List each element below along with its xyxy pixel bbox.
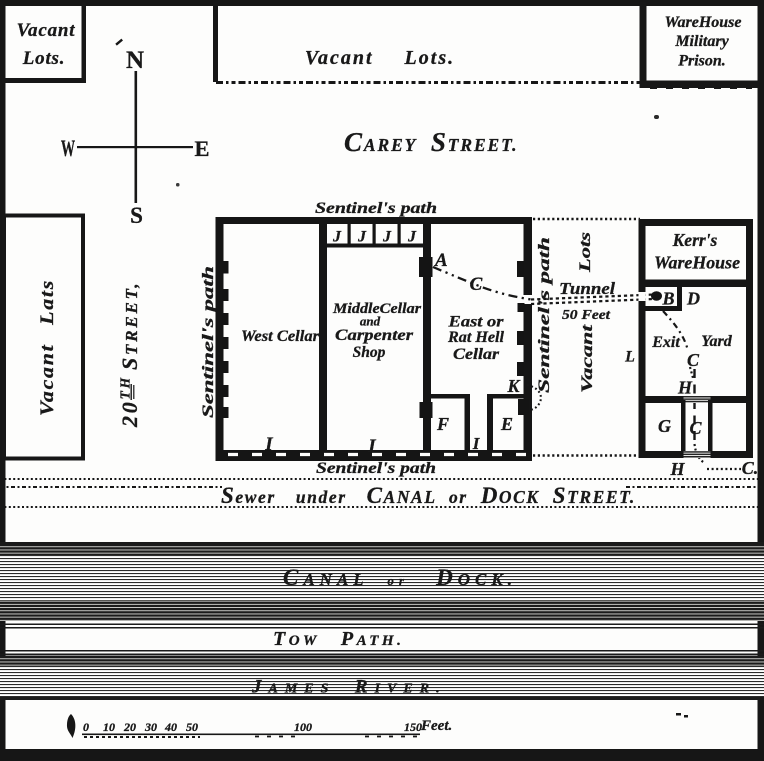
svg-text:Rat Hell: Rat Hell: [447, 329, 505, 346]
svg-text:C: C: [470, 274, 483, 295]
svg-text:20: 20: [123, 720, 136, 734]
svg-text:East or: East or: [447, 314, 504, 331]
svg-text:0: 0: [83, 720, 89, 734]
svg-text:Military: Military: [674, 33, 729, 50]
svg-text:E: E: [194, 136, 209, 161]
svg-text:B: B: [661, 289, 674, 309]
svg-text:50: 50: [186, 720, 198, 734]
svg-text:K: K: [506, 376, 521, 396]
svg-text:D: D: [686, 289, 700, 309]
svg-text:G: G: [658, 416, 671, 436]
svg-text:C: C: [687, 350, 700, 370]
svg-text:Tunnel: Tunnel: [559, 279, 615, 298]
svg-text:Vacant: Vacant: [579, 324, 596, 393]
svg-text:40: 40: [164, 720, 177, 734]
svg-text:F: F: [436, 414, 449, 434]
svg-text:J: J: [407, 229, 417, 246]
svg-text:H: H: [669, 459, 685, 479]
svg-text:I: I: [367, 436, 376, 457]
svg-text:Sentinel's path: Sentinel's path: [200, 266, 217, 418]
svg-text:C.: C.: [742, 458, 759, 478]
svg-text:I: I: [264, 434, 273, 455]
svg-text:J: J: [357, 229, 367, 246]
svg-text:Exit: Exit: [651, 334, 680, 351]
svg-text:W: W: [61, 137, 75, 162]
svg-text:50 Feet: 50 Feet: [562, 308, 611, 323]
svg-text:30: 30: [144, 720, 157, 734]
svg-text:Kerr's: Kerr's: [672, 230, 718, 250]
svg-text:J: J: [382, 229, 392, 246]
svg-text:C: C: [689, 418, 702, 438]
svg-text:150: 150: [404, 720, 422, 734]
svg-text:10: 10: [103, 720, 115, 734]
svg-text:Sentinel's path: Sentinel's path: [316, 460, 436, 477]
svg-text:Lots.: Lots.: [22, 48, 66, 69]
svg-text:H: H: [677, 378, 693, 398]
svg-text:Vacant Lats: Vacant Lats: [37, 279, 58, 416]
svg-text:J: J: [332, 229, 342, 246]
svg-text:L: L: [624, 349, 635, 366]
svg-text:E: E: [500, 414, 513, 434]
svg-text:Sentinel's path: Sentinel's path: [536, 237, 553, 393]
svg-text:Prison.: Prison.: [677, 53, 726, 70]
svg-text:Sewer under CANAL or DOCK STRE: Sewer under CANAL or DOCK STREET.: [221, 483, 636, 508]
svg-text:Vacant: Vacant: [17, 20, 76, 41]
svg-text:West Cellar: West Cellar: [241, 328, 320, 345]
svg-text:WareHouse: WareHouse: [654, 253, 740, 273]
svg-text:Feet.: Feet.: [420, 718, 452, 734]
svg-text:Lots: Lots: [577, 232, 594, 273]
svg-text:Shop: Shop: [353, 344, 386, 361]
svg-text:WareHouse: WareHouse: [664, 14, 741, 31]
svg-text:Cellar: Cellar: [453, 346, 500, 363]
svg-text:Yard: Yard: [701, 333, 733, 350]
svg-text:Carpenter: Carpenter: [335, 327, 414, 344]
svg-text:S: S: [130, 203, 143, 228]
svg-text:100: 100: [294, 720, 312, 734]
svg-text:N: N: [126, 47, 144, 74]
svg-text:Vacant Lots.: Vacant Lots.: [305, 47, 455, 69]
svg-text:Sentinel's path: Sentinel's path: [315, 200, 437, 217]
